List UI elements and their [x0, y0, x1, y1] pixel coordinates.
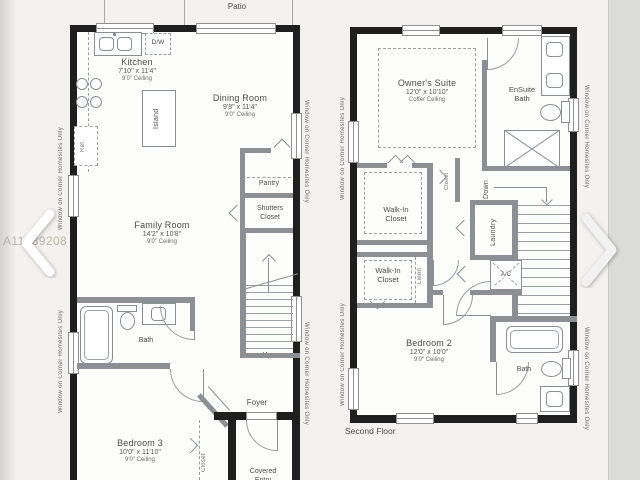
- door-leaf: [433, 260, 434, 286]
- window-note: Window on Corner Homesites Only: [58, 145, 64, 230]
- wall-segment: [350, 27, 577, 34]
- wall-segment: [214, 412, 246, 420]
- wall-segment: [350, 27, 357, 423]
- window-marker: [502, 25, 542, 36]
- window-note: Window on Corner Homesites Only: [583, 85, 589, 175]
- room-ceiling: 9'0" Ceiling: [118, 76, 156, 82]
- closet-dashed-front: [199, 420, 200, 480]
- interior-wall: [77, 363, 170, 369]
- room-dims: 12'0" x 10'10": [398, 89, 456, 96]
- bath-label: Bath: [139, 337, 153, 344]
- room-ceiling: 9'0" Ceiling: [134, 239, 189, 245]
- room-dims: 7'10" x 11'4": [118, 68, 156, 75]
- wall-segment: [292, 415, 300, 480]
- vanity-sink: [546, 42, 563, 57]
- chevron-right-icon: [576, 212, 624, 288]
- window-marker: [402, 25, 440, 36]
- interior-wall: [245, 148, 271, 153]
- patio-slider-door: [196, 23, 276, 34]
- patio-line: [292, 0, 293, 25]
- bedroom2-room-label: Bedroom 2 12'0" x 10'0" 9'0" Ceiling: [406, 338, 452, 363]
- interior-wall: [240, 228, 293, 233]
- door-leaf: [496, 362, 497, 395]
- interior-wall: [357, 252, 433, 257]
- wall-segment: [70, 25, 77, 480]
- window-marker: [348, 368, 359, 410]
- window-note: Window on Corner Homesites Only: [303, 322, 309, 414]
- door-leaf: [487, 38, 488, 70]
- toilet-tank: [561, 101, 570, 123]
- dining-room-label: Dining Room 9'8" x 11'4" 9'0" Ceiling: [213, 93, 267, 118]
- bedroom3-room-label: Bedroom 3 10'0" x 11'10" 9'0" Ceiling: [117, 438, 163, 463]
- interior-wall: [357, 163, 387, 168]
- shower-x-box: [504, 130, 560, 168]
- window-marker: [396, 413, 434, 424]
- faucet: [113, 33, 116, 36]
- closet-shelf-dashed: [364, 172, 422, 234]
- kitchen-room-label: Kitchen 7'10" x 11'4" 9'0" Ceiling: [118, 57, 156, 82]
- window-marker: [516, 413, 538, 424]
- cooktop-burner: [76, 96, 88, 108]
- window-note: Window on Corner Homesites Only: [340, 112, 346, 200]
- interior-wall: [240, 148, 245, 232]
- interior-wall: [490, 322, 496, 362]
- ensuite-bath-label: EnSuite Bath: [504, 85, 540, 103]
- prev-image-button[interactable]: [16, 208, 60, 278]
- room-dims: 12'0" x 10'0": [406, 349, 452, 356]
- interior-wall: [470, 200, 518, 205]
- down-arrow-line: [494, 187, 547, 188]
- wall-segment: [350, 415, 577, 423]
- interior-wall: [427, 290, 443, 295]
- window-note: Window on Corner Homesites Only: [58, 328, 64, 413]
- toilet-bowl: [120, 312, 135, 330]
- bathtub: [506, 326, 563, 353]
- stairs-up: [246, 285, 293, 355]
- room-ceiling: 9'0" Ceiling: [213, 112, 267, 118]
- cooktop-burner: [76, 78, 88, 90]
- patio-line: [104, 0, 105, 25]
- chevron-left-icon: [16, 208, 60, 278]
- interior-wall: [470, 200, 475, 260]
- family-room-label: Family Room 14'2" x 10'8" 9'0" Ceiling: [134, 220, 189, 245]
- second-floor-label: Second Floor: [345, 426, 396, 436]
- toilet-bowl: [541, 361, 562, 377]
- next-image-button[interactable]: [576, 212, 624, 288]
- sink-basin: [99, 37, 114, 51]
- shutters-closet-label: Shutters Closet: [250, 204, 290, 222]
- sink-basin: [117, 37, 132, 51]
- interior-wall: [490, 316, 577, 322]
- floorplan-viewer: A11439208 © Miami MLS® 2023 Patio D/W Re…: [0, 0, 640, 480]
- room-ceiling: 9'0" Ceiling: [406, 357, 452, 363]
- island-label: Island: [153, 102, 160, 136]
- small-closet-label: Closet: [444, 166, 450, 196]
- cooktop-burner: [90, 78, 102, 90]
- walkin-closet-label: Walk-In Closet: [376, 205, 416, 223]
- interior-wall: [245, 193, 293, 198]
- vanity-sink: [546, 391, 563, 407]
- window-note: Window on Corner Homesites Only: [340, 318, 346, 406]
- window-marker: [348, 121, 359, 163]
- refrigerator: [74, 126, 98, 166]
- linen-dashed-front: [415, 257, 416, 303]
- patio-line: [184, 0, 185, 25]
- foyer-label: Foyer: [247, 398, 267, 407]
- room-ceiling: 9'0" Ceiling: [117, 457, 163, 463]
- pantry-shelf-dashed: [247, 177, 291, 178]
- cooktop-burner: [90, 96, 102, 108]
- patio-label: Patio: [228, 2, 246, 11]
- room-dims: 10'0" x 11'10": [117, 449, 163, 456]
- stairs-down: [518, 205, 570, 317]
- toilet-tank: [117, 305, 137, 312]
- room-dims: 14'2" x 10'8": [134, 231, 189, 238]
- window-note: Window on Corner Homesites Only: [583, 327, 589, 417]
- room-name: Bedroom 3: [117, 438, 163, 448]
- interior-wall: [482, 60, 487, 168]
- refrigerator-label: Ref.: [80, 132, 86, 160]
- wall-segment: [228, 420, 236, 480]
- window-note: Window on Corner Homesites Only: [303, 100, 309, 190]
- bathtub-inner: [84, 310, 109, 360]
- interior-wall: [357, 240, 433, 245]
- vanity-sink: [546, 73, 563, 88]
- covered-entry-label: Covered Entry: [241, 467, 285, 480]
- pantry-label: Pantry: [259, 180, 279, 187]
- door-leaf: [443, 295, 444, 325]
- dishwasher-label: D/W: [152, 39, 165, 46]
- door-leaf: [194, 306, 195, 340]
- bathtub: [80, 306, 113, 364]
- owners-suite-label: Owner's Suite 12'0" x 10'10" Coffer Ceil…: [398, 78, 456, 103]
- door-leaf: [277, 420, 278, 451]
- walkin-closet-label: Walk-In Closet: [368, 266, 408, 284]
- room-ceiling: Coffer Ceiling: [398, 97, 456, 103]
- bath-label: Bath: [517, 366, 531, 373]
- toilet-bowl: [540, 104, 561, 121]
- room-name: Kitchen: [118, 57, 156, 67]
- laundry-label: Laundry: [490, 211, 497, 253]
- interior-wall: [455, 158, 460, 202]
- room-name: Owner's Suite: [398, 78, 456, 88]
- door-leaf: [456, 315, 491, 316]
- room-name: Bedroom 2: [406, 338, 452, 348]
- ac-label: A/C: [500, 272, 512, 278]
- closet-label: Closet: [201, 448, 207, 478]
- interior-wall: [357, 303, 433, 308]
- room-name: Dining Room: [213, 93, 267, 103]
- interior-wall: [240, 353, 300, 358]
- window-marker: [291, 113, 302, 159]
- ac-unit: A/C: [490, 260, 522, 290]
- interior-wall: [482, 166, 570, 171]
- toilet-tank: [562, 358, 571, 379]
- bathtub-inner: [510, 330, 559, 349]
- room-dims: 9'8" x 11'4": [213, 104, 267, 111]
- window-marker: [68, 175, 79, 217]
- room-name: Family Room: [134, 220, 189, 230]
- interior-wall: [77, 297, 195, 303]
- entry-door-opening: [246, 412, 277, 420]
- linen-label: Linen: [417, 262, 423, 290]
